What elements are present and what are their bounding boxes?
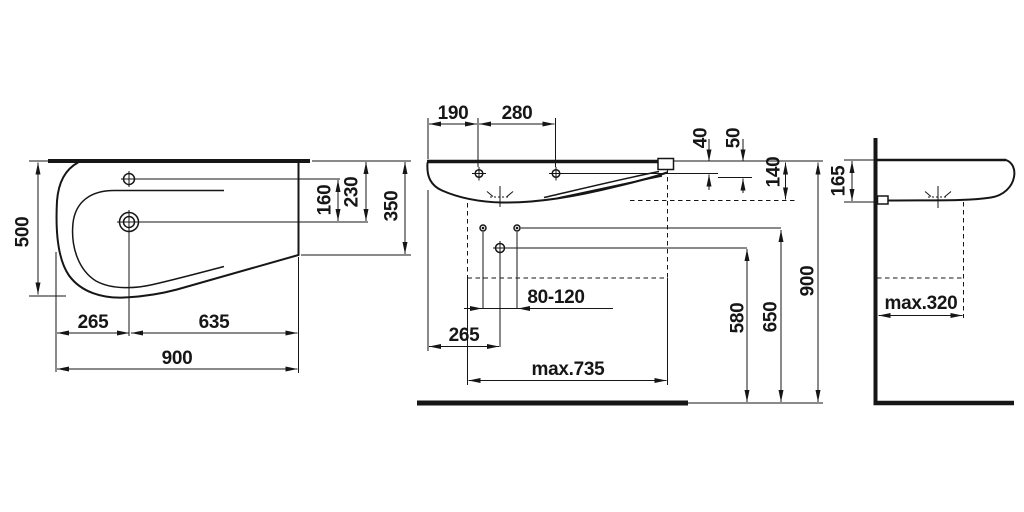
dim-label-plan-width: 900 — [162, 348, 193, 369]
dim-label-front-rim-floor: 900 — [798, 266, 819, 297]
dim-front-anchor-height: 650 — [761, 230, 782, 402]
dim-side-rim-to-underside: 165 — [829, 160, 877, 202]
plan-view: 500 160 230 350 265 635 — [13, 161, 411, 373]
plan-drain-hole — [117, 210, 368, 336]
dim-front-edge-to-trap: 265 — [429, 325, 499, 347]
dim-label-side-max-depth: max.320 — [885, 293, 958, 314]
dim-plan-depth: 500 — [13, 161, 66, 296]
dim-label-front-edge-hole: 190 — [438, 103, 469, 124]
dim-plan-drain-to-right: 635 — [131, 312, 298, 333]
washbasin-dimension-drawing: 500 160 230 350 265 635 — [0, 0, 1024, 512]
dim-front-anchor-spacing: 80-120 — [464, 287, 613, 309]
dim-label-front-rim-lip: 50 — [724, 128, 745, 149]
front-tap-hole-left — [472, 167, 486, 181]
dim-front-max-width: max.735 — [469, 359, 667, 381]
front-drain-symbol — [487, 186, 513, 207]
dim-label-front-holes: 280 — [502, 103, 533, 124]
dim-front-edge-to-hole: 190 — [428, 103, 556, 167]
technical-drawing-page: 500 160 230 350 265 635 — [0, 0, 1024, 512]
front-overflow-channel-lower — [558, 176, 662, 198]
side-wall-bracket — [878, 196, 889, 204]
front-view: 190 280 40 50 140 80-120 — [417, 103, 823, 403]
dim-label-plan-tap-drain: 160 — [315, 185, 336, 216]
dim-label-side-rim-under: 165 — [829, 165, 850, 197]
dim-label-plan-depth: 500 — [13, 217, 34, 248]
dim-front-rim-to-bowl: 140 — [764, 157, 786, 200]
dim-front-trap-height: 580 — [728, 249, 749, 402]
dim-label-plan-rim-corner: 350 — [382, 191, 403, 222]
side-basin-profile — [877, 160, 1014, 201]
dim-label-plan-drain-right: 635 — [199, 312, 231, 333]
side-view: 165 max.320 — [829, 138, 1015, 403]
dim-label-front-anchors: 80-120 — [527, 287, 584, 308]
front-fixing-hole-left — [480, 225, 486, 231]
front-fixing-hole-right — [514, 225, 520, 231]
plan-bowl-inner-edge — [73, 191, 224, 288]
dim-side-max-depth: max.320 — [879, 293, 963, 316]
dim-plan-tap-to-drain: 160 — [315, 180, 338, 221]
plan-tap-hole — [121, 171, 340, 187]
dim-label-front-rim-tap: 40 — [691, 128, 712, 149]
plan-basin-outline — [57, 163, 299, 298]
side-drain-symbol — [925, 186, 951, 208]
dim-front-rim-to-lip: 50 — [724, 128, 745, 193]
dim-label-plan-rim-drain: 230 — [342, 177, 363, 208]
dim-label-front-rim-bowl: 140 — [764, 157, 785, 188]
dim-label-front-max-width: max.735 — [532, 359, 606, 380]
dim-label-front-anchor-floor: 650 — [761, 302, 782, 333]
dim-label-front-edge-trap: 265 — [449, 325, 481, 346]
dim-front-rim-to-tap: 40 — [691, 128, 712, 190]
dim-front-hole-spacing: 280 — [479, 103, 555, 124]
front-trap-hole — [493, 241, 507, 255]
front-overflow-channel-upper — [544, 172, 659, 198]
dim-label-front-trap-floor: 580 — [728, 303, 749, 334]
dim-front-rim-height: 900 — [798, 163, 819, 403]
dim-plan-left-to-drain: 265 — [56, 252, 129, 372]
front-rim-end-section — [658, 159, 674, 170]
dim-label-plan-left-drain: 265 — [78, 312, 110, 333]
front-tap-hole-right — [549, 167, 718, 181]
